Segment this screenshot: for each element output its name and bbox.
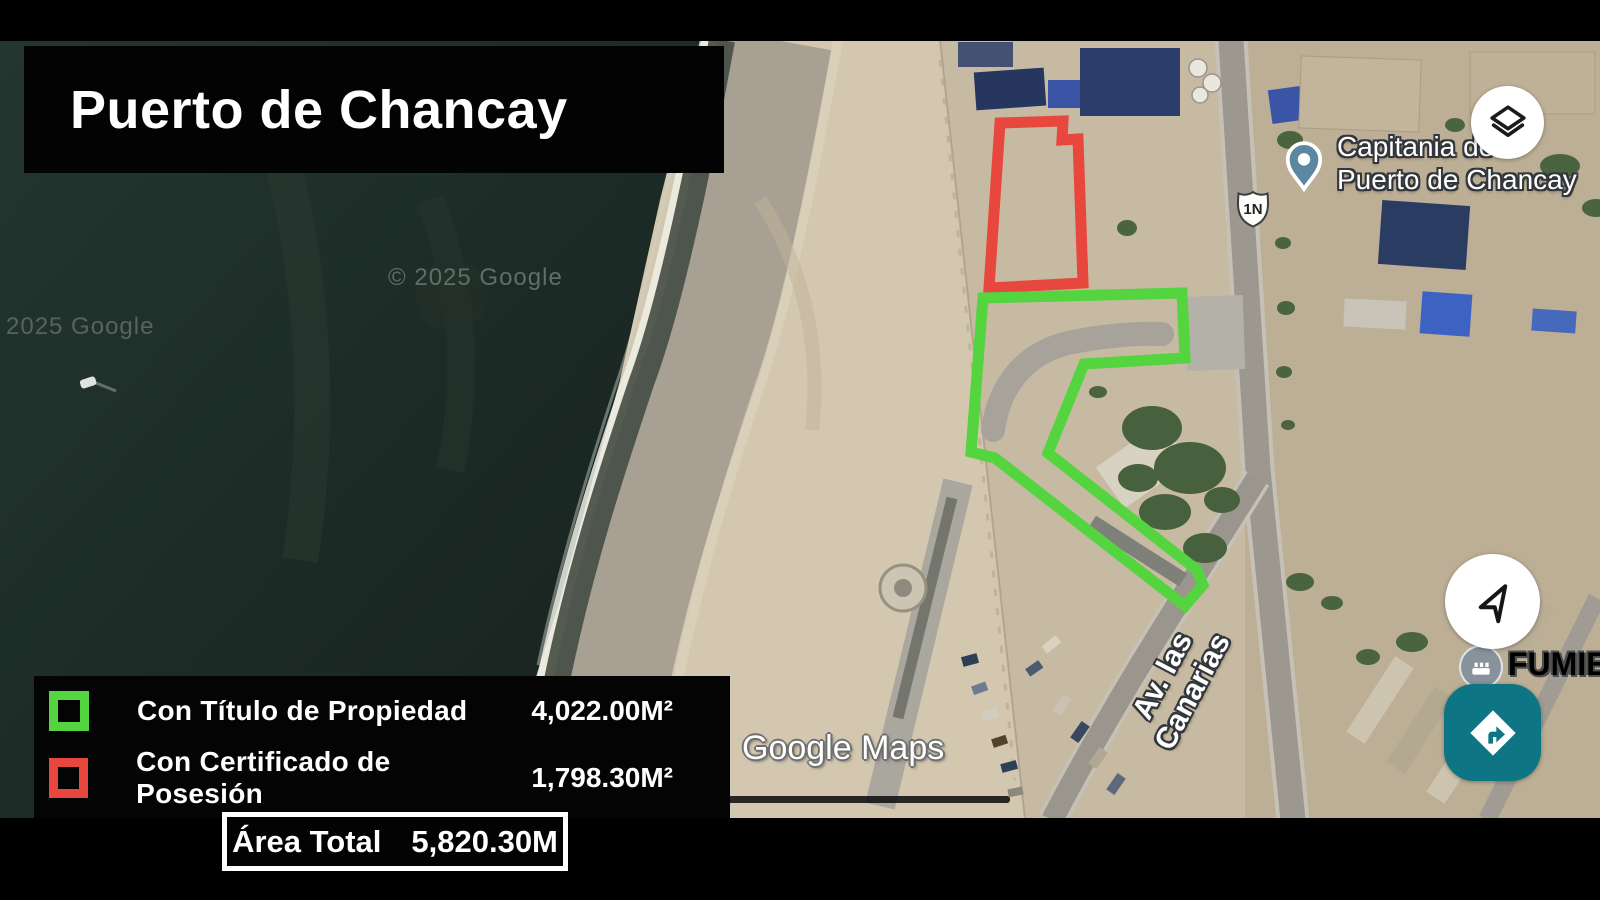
layers-icon	[1485, 100, 1531, 146]
page-title: Puerto de Chancay	[70, 79, 568, 141]
total-area-box: Área Total 5,820.30M	[222, 812, 568, 871]
total-area-value: 5,820.30M	[411, 824, 558, 860]
fumiex-poi-icon[interactable]	[1459, 645, 1503, 689]
navigation-arrow-icon	[1465, 574, 1521, 630]
svg-text:1N: 1N	[1243, 201, 1262, 218]
legend-swatch-red	[49, 758, 88, 798]
legend-panel: Con Título de Propiedad 4,022.00M² Con C…	[34, 676, 730, 818]
copyright-watermark-center: © 2025 Google	[388, 264, 563, 292]
title-banner: Puerto de Chancay	[24, 46, 724, 173]
legend-swatch-green	[49, 691, 89, 731]
legend-label: Con Título de Propiedad	[137, 695, 467, 727]
legend-value: 4,022.00M²	[503, 695, 673, 727]
poi-label-fumiex[interactable]: FUMIEX	[1508, 646, 1600, 683]
copyright-watermark-left: 2025 Google	[6, 313, 154, 341]
turn-right-diamond-icon	[1461, 701, 1525, 765]
poi-label-capitania-line2: Puerto de Chancay	[1337, 163, 1600, 196]
poi-label-capitania-line1: Capitania de	[1337, 130, 1600, 163]
top-letterbox-bar	[0, 0, 1600, 41]
directions-button[interactable]	[1444, 684, 1541, 781]
screenshot-stage: © 2025 Google 2025 Google Google Maps Ca…	[0, 0, 1600, 900]
layers-button[interactable]	[1471, 86, 1544, 159]
total-area-label: Área Total	[232, 824, 381, 860]
my-location-button[interactable]	[1445, 554, 1540, 649]
legend-row-possession: Con Certificado de Posesión 1,798.30M²	[34, 757, 730, 799]
legend-row-titled: Con Título de Propiedad 4,022.00M²	[34, 690, 730, 732]
legend-value: 1,798.30M²	[510, 762, 673, 794]
poi-label-capitania[interactable]: Capitania de Puerto de Chancay	[1337, 130, 1600, 196]
fumigation-icon	[1468, 654, 1494, 680]
map-pin-icon[interactable]	[1283, 141, 1325, 193]
google-maps-watermark: Google Maps	[742, 729, 944, 768]
map-scale-bar	[727, 796, 1010, 803]
legend-label: Con Certificado de Posesión	[136, 746, 510, 810]
route-shield-1n: 1N	[1236, 190, 1270, 228]
